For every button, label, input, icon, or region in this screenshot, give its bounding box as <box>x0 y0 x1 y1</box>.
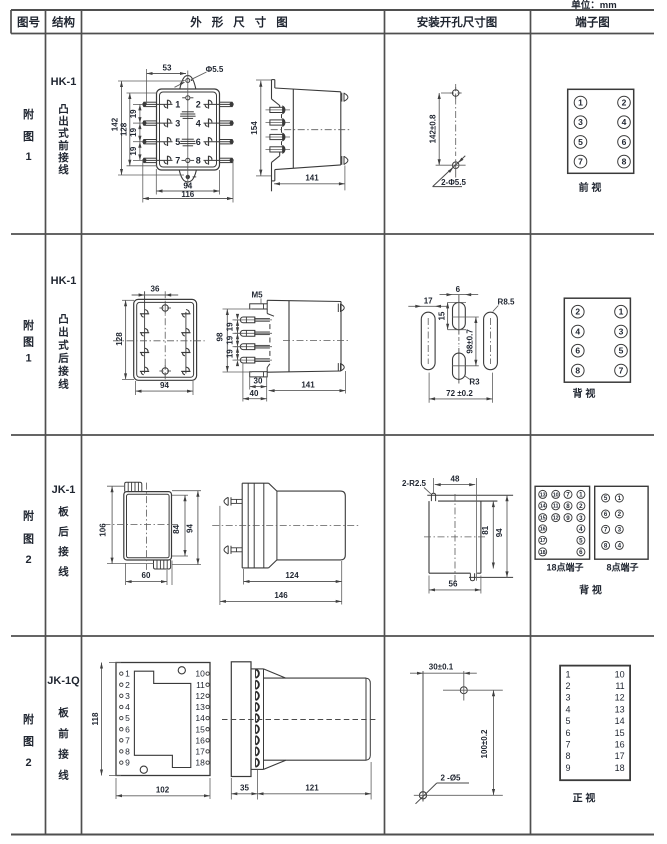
svg-text:6: 6 <box>456 285 461 294</box>
svg-text:R8.5: R8.5 <box>498 297 515 306</box>
svg-text:附: 附 <box>23 509 34 523</box>
svg-text:124: 124 <box>285 571 299 580</box>
svg-text:81: 81 <box>481 525 490 534</box>
svg-text:5: 5 <box>579 538 583 545</box>
svg-text:56: 56 <box>449 580 458 589</box>
svg-text:图: 图 <box>23 735 34 748</box>
svg-text:2: 2 <box>575 307 580 317</box>
svg-text:17: 17 <box>615 751 625 761</box>
svg-text:M5: M5 <box>251 291 263 300</box>
svg-text:10: 10 <box>195 669 205 679</box>
svg-text:JK-1Q: JK-1Q <box>47 675 80 687</box>
svg-text:3: 3 <box>618 527 622 534</box>
svg-text:15: 15 <box>540 516 546 522</box>
svg-text:附: 附 <box>23 712 34 726</box>
svg-text:凸: 凸 <box>58 104 69 116</box>
svg-text:72 ±0.2: 72 ±0.2 <box>446 389 473 398</box>
svg-text:5: 5 <box>125 713 130 723</box>
svg-text:线: 线 <box>58 768 69 781</box>
svg-text:图: 图 <box>23 533 34 546</box>
svg-text:18: 18 <box>195 758 205 768</box>
svg-text:142±0.8: 142±0.8 <box>428 114 437 143</box>
svg-text:1: 1 <box>618 495 622 502</box>
svg-text:13: 13 <box>195 702 205 712</box>
svg-text:5: 5 <box>175 137 180 147</box>
svg-text:图: 图 <box>23 336 34 349</box>
svg-text:6: 6 <box>125 724 130 734</box>
svg-text:7: 7 <box>578 157 583 167</box>
svg-text:接: 接 <box>58 748 69 761</box>
svg-text:8: 8 <box>622 157 627 167</box>
svg-text:8点端子: 8点端子 <box>606 562 638 573</box>
svg-text:8: 8 <box>196 156 201 166</box>
svg-text:7: 7 <box>566 492 570 499</box>
svg-text:94: 94 <box>160 381 169 390</box>
svg-text:4: 4 <box>196 118 201 128</box>
svg-text:1: 1 <box>619 307 624 317</box>
svg-text:35: 35 <box>240 783 249 792</box>
svg-text:前 视: 前 视 <box>579 181 602 194</box>
svg-text:7: 7 <box>604 527 608 534</box>
svg-text:7: 7 <box>175 156 180 166</box>
svg-text:背 视: 背 视 <box>573 387 596 400</box>
svg-text:98±0.7: 98±0.7 <box>465 329 474 354</box>
svg-text:4: 4 <box>125 702 130 712</box>
svg-text:3: 3 <box>125 691 130 701</box>
svg-text:附: 附 <box>23 318 34 332</box>
svg-text:正 视: 正 视 <box>573 792 596 805</box>
svg-text:15: 15 <box>437 311 446 320</box>
svg-text:结构: 结构 <box>51 15 75 29</box>
svg-text:94: 94 <box>495 528 504 537</box>
svg-text:11: 11 <box>196 680 205 690</box>
svg-text:17: 17 <box>540 538 546 544</box>
svg-text:4: 4 <box>618 543 622 550</box>
svg-text:13: 13 <box>615 704 625 714</box>
svg-text:3: 3 <box>619 327 624 337</box>
svg-text:式: 式 <box>58 339 69 352</box>
svg-text:146: 146 <box>274 591 288 600</box>
svg-text:6: 6 <box>196 137 201 147</box>
svg-text:1: 1 <box>25 151 31 163</box>
svg-text:2: 2 <box>618 511 622 518</box>
svg-text:15: 15 <box>615 728 625 738</box>
svg-text:94: 94 <box>183 181 192 190</box>
svg-text:HK-1: HK-1 <box>51 76 77 88</box>
svg-text:后: 后 <box>58 352 69 365</box>
svg-text:15: 15 <box>195 724 205 734</box>
svg-text:7: 7 <box>125 735 130 745</box>
svg-text:16: 16 <box>615 740 625 750</box>
svg-text:5: 5 <box>566 716 571 726</box>
svg-text:10: 10 <box>553 492 559 498</box>
svg-text:98: 98 <box>215 332 224 341</box>
svg-text:7: 7 <box>566 740 571 750</box>
svg-text:线: 线 <box>58 565 69 578</box>
svg-text:安装开孔尺寸图: 安装开孔尺寸图 <box>417 15 498 29</box>
svg-text:3: 3 <box>579 515 583 522</box>
svg-text:14: 14 <box>195 713 205 723</box>
svg-text:18: 18 <box>615 763 625 773</box>
svg-text:19: 19 <box>129 127 138 136</box>
svg-text:106: 106 <box>98 523 107 537</box>
svg-text:19: 19 <box>129 109 138 118</box>
svg-text:154: 154 <box>250 121 259 135</box>
svg-text:48: 48 <box>451 475 460 484</box>
svg-text:84: 84 <box>172 524 181 533</box>
svg-text:6: 6 <box>579 549 583 556</box>
svg-text:17: 17 <box>424 296 433 305</box>
svg-text:2: 2 <box>25 757 31 769</box>
svg-text:16: 16 <box>195 735 205 745</box>
svg-text:14: 14 <box>540 504 546 510</box>
svg-text:后: 后 <box>58 525 69 538</box>
svg-text:4: 4 <box>566 704 571 714</box>
svg-text:16: 16 <box>540 527 546 533</box>
svg-text:30: 30 <box>254 377 263 386</box>
svg-text:端子图: 端子图 <box>575 15 610 29</box>
svg-text:11: 11 <box>615 681 624 691</box>
svg-text:19: 19 <box>129 146 138 155</box>
svg-text:102: 102 <box>156 785 170 794</box>
svg-text:5: 5 <box>619 346 624 356</box>
svg-text:6: 6 <box>575 346 580 356</box>
svg-text:板: 板 <box>58 706 69 719</box>
svg-text:17: 17 <box>195 747 205 757</box>
svg-text:40: 40 <box>250 389 259 398</box>
svg-text:接: 接 <box>58 151 69 164</box>
svg-text:94: 94 <box>186 524 195 533</box>
svg-text:单位：mm: 单位：mm <box>571 0 616 11</box>
svg-text:116: 116 <box>181 190 194 199</box>
svg-text:1: 1 <box>175 100 180 110</box>
svg-text:2: 2 <box>566 681 571 691</box>
svg-text:8: 8 <box>575 366 580 376</box>
svg-text:142: 142 <box>110 117 119 131</box>
svg-text:JK-1: JK-1 <box>52 484 76 496</box>
svg-text:1: 1 <box>578 98 583 108</box>
svg-text:R3: R3 <box>469 377 480 386</box>
svg-text:3: 3 <box>566 693 571 703</box>
svg-text:1: 1 <box>579 492 583 499</box>
svg-text:141: 141 <box>305 173 319 182</box>
svg-text:128: 128 <box>115 332 124 346</box>
svg-text:2: 2 <box>125 680 130 690</box>
svg-text:附: 附 <box>23 107 34 121</box>
svg-text:10: 10 <box>615 669 625 679</box>
svg-text:1: 1 <box>566 669 571 679</box>
svg-text:12: 12 <box>195 691 205 701</box>
svg-text:19: 19 <box>225 322 234 331</box>
svg-text:6: 6 <box>604 511 608 518</box>
svg-text:凸: 凸 <box>58 314 69 326</box>
svg-text:4: 4 <box>622 117 627 127</box>
svg-text:接: 接 <box>58 365 69 378</box>
svg-text:2: 2 <box>579 503 583 510</box>
svg-text:53: 53 <box>163 64 172 73</box>
svg-text:118: 118 <box>91 712 100 725</box>
svg-text:4: 4 <box>579 526 583 533</box>
svg-text:出: 出 <box>58 115 69 128</box>
svg-text:11: 11 <box>553 504 559 510</box>
svg-text:12: 12 <box>615 693 625 703</box>
svg-text:线: 线 <box>58 163 69 176</box>
svg-text:9: 9 <box>125 758 130 768</box>
svg-text:5: 5 <box>578 137 583 147</box>
svg-text:30±0.1: 30±0.1 <box>429 663 454 672</box>
svg-text:8: 8 <box>125 747 130 757</box>
svg-text:2: 2 <box>196 100 201 110</box>
svg-text:19: 19 <box>225 335 234 344</box>
svg-text:13: 13 <box>540 492 546 498</box>
svg-text:18点端子: 18点端子 <box>546 562 583 573</box>
svg-text:HK-1: HK-1 <box>51 275 77 287</box>
svg-text:线: 线 <box>58 378 69 391</box>
svg-text:前: 前 <box>58 727 69 740</box>
svg-text:36: 36 <box>151 285 160 294</box>
svg-text:前: 前 <box>58 139 69 152</box>
svg-text:1: 1 <box>125 669 130 679</box>
svg-text:14: 14 <box>615 716 625 726</box>
svg-text:6: 6 <box>566 728 571 738</box>
svg-text:9: 9 <box>566 763 571 773</box>
svg-text:8: 8 <box>566 503 570 510</box>
svg-text:出: 出 <box>58 326 69 339</box>
svg-text:2-Φ5.5: 2-Φ5.5 <box>441 178 466 187</box>
svg-text:2 -Ø5: 2 -Ø5 <box>440 774 461 783</box>
svg-text:5: 5 <box>604 495 608 502</box>
svg-text:121: 121 <box>305 783 319 792</box>
svg-text:2: 2 <box>25 554 31 566</box>
svg-text:外形尺寸图: 外形尺寸图 <box>189 15 298 29</box>
svg-text:Φ5.5: Φ5.5 <box>206 65 224 74</box>
svg-text:接: 接 <box>58 545 69 558</box>
svg-text:8: 8 <box>604 543 608 550</box>
svg-text:3: 3 <box>578 117 583 127</box>
svg-text:背 视: 背 视 <box>579 584 602 597</box>
svg-text:18: 18 <box>540 550 546 556</box>
svg-text:100±0.2: 100±0.2 <box>480 729 489 758</box>
svg-text:12: 12 <box>553 516 559 522</box>
svg-text:图: 图 <box>23 130 34 143</box>
svg-text:图号: 图号 <box>17 15 40 29</box>
svg-text:141: 141 <box>301 381 315 390</box>
svg-text:1: 1 <box>25 353 31 365</box>
svg-text:式: 式 <box>58 127 69 140</box>
svg-text:60: 60 <box>142 571 151 580</box>
svg-text:板: 板 <box>58 505 69 518</box>
svg-text:4: 4 <box>575 327 580 337</box>
svg-text:7: 7 <box>619 366 624 376</box>
svg-text:6: 6 <box>622 137 627 147</box>
svg-text:2-R2.5: 2-R2.5 <box>402 479 427 488</box>
svg-text:3: 3 <box>175 118 180 128</box>
svg-text:2: 2 <box>622 98 627 108</box>
svg-text:9: 9 <box>566 515 570 522</box>
svg-text:8: 8 <box>566 751 571 761</box>
svg-text:19: 19 <box>225 349 234 358</box>
svg-text:128: 128 <box>120 122 129 136</box>
